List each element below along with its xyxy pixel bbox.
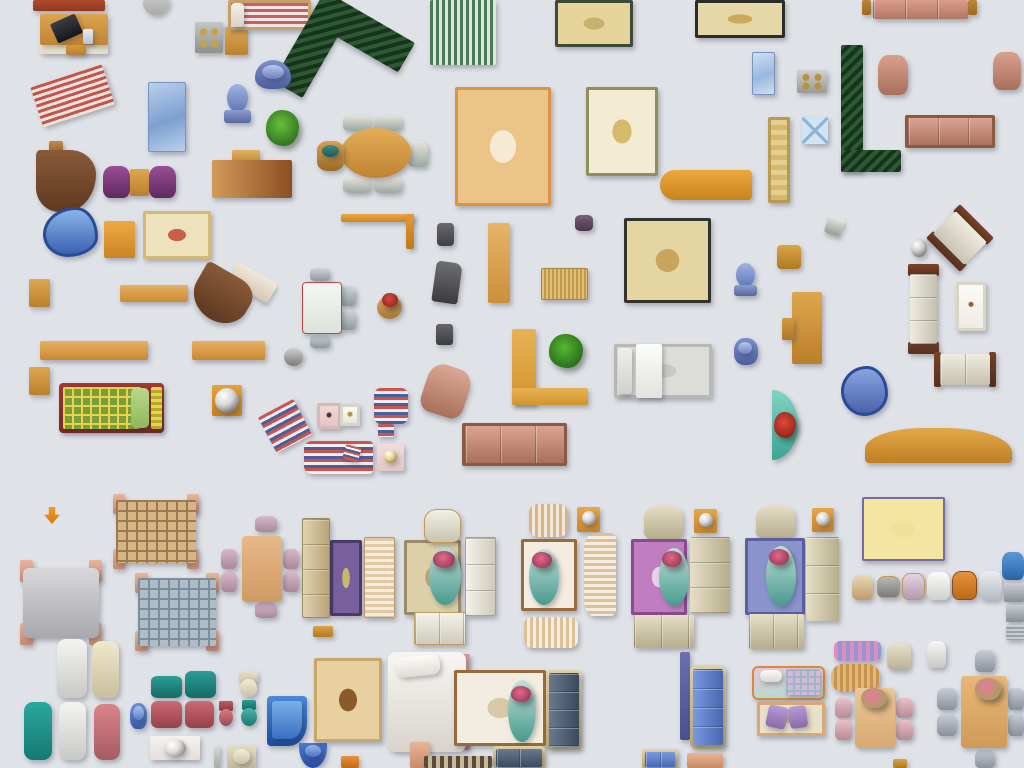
desk-return[interactable] (782, 318, 794, 340)
bathtub-cream[interactable] (92, 641, 119, 698)
toilet-bowl[interactable] (736, 263, 755, 287)
rug-yellow-plain[interactable] (862, 497, 945, 561)
nightstand[interactable] (225, 27, 248, 55)
flowers-2[interactable] (532, 552, 552, 568)
flower-bouquet[interactable] (975, 678, 1001, 700)
corner-sink-basin[interactable] (305, 745, 321, 757)
sofa-striped-v[interactable] (584, 533, 616, 616)
l-sofa-horizontal-arm[interactable] (841, 150, 901, 172)
loveseat-cushions-blue[interactable] (645, 752, 675, 767)
red-flowers[interactable] (382, 293, 398, 307)
dining-chair-gray[interactable] (1008, 688, 1024, 710)
desk-l-shape[interactable] (782, 292, 822, 364)
lounge-striped[interactable] (30, 64, 114, 127)
sofa-pink-top[interactable] (862, 0, 977, 20)
chair-gray[interactable] (877, 576, 900, 598)
mahjong-chair[interactable] (310, 335, 330, 348)
sofa-cushions-v[interactable] (910, 274, 937, 344)
shower-base[interactable] (227, 745, 256, 768)
sink-pink-1[interactable] (151, 701, 182, 728)
dining-chair-gray[interactable] (975, 750, 995, 768)
mahjong-table-set[interactable] (296, 268, 356, 348)
glass-door[interactable] (148, 82, 186, 152)
wood-bit-2[interactable] (893, 759, 907, 768)
sofa-body[interactable] (873, 0, 968, 19)
metal-ball[interactable] (699, 513, 713, 527)
dining-chair-gray[interactable] (937, 714, 957, 736)
side-table-ball-2[interactable] (694, 509, 717, 533)
bathtub-white-2[interactable] (59, 702, 86, 760)
dining-chair-pink[interactable] (221, 549, 237, 569)
dining-chair-pink[interactable] (896, 698, 913, 718)
armchair-purple-1[interactable] (103, 166, 130, 198)
armchair-seat[interactable] (374, 388, 408, 424)
plank-long-2[interactable] (192, 341, 265, 360)
toilet-red[interactable] (217, 701, 235, 726)
piano-upright[interactable] (184, 248, 278, 339)
oval-table-top[interactable] (341, 128, 411, 178)
rug-black-border-2[interactable] (624, 218, 711, 303)
dining-chair-pink[interactable] (255, 602, 277, 618)
desk-drawer[interactable] (66, 45, 86, 55)
stool-wood-tall[interactable] (777, 245, 801, 269)
side-table-ball-1[interactable] (577, 507, 600, 532)
plank-h-1[interactable] (120, 285, 188, 302)
seat-gray-2[interactable] (1006, 605, 1024, 622)
dining-set-wood[interactable] (937, 650, 1024, 768)
loveseat-slate[interactable] (493, 746, 545, 768)
pot-gray[interactable] (284, 348, 303, 366)
mahjong-table[interactable] (302, 282, 342, 334)
toilet-bowl[interactable] (227, 84, 248, 112)
chair-dotted[interactable] (902, 573, 925, 600)
red-flowers[interactable] (774, 412, 796, 438)
seat-gray-3[interactable] (1006, 625, 1024, 640)
rug-purple-strip[interactable] (330, 540, 362, 616)
bathtub-teal[interactable] (24, 702, 52, 760)
sofa-pink-3seat-b[interactable] (462, 423, 567, 466)
barrel-rim[interactable] (322, 145, 339, 157)
loveseat-arm[interactable] (989, 352, 996, 387)
towel-rail[interactable] (214, 746, 220, 768)
barrel-table[interactable] (317, 141, 344, 171)
toilet-base[interactable] (734, 285, 757, 296)
bathtub-white-1[interactable] (57, 639, 87, 698)
wood-bit[interactable] (313, 626, 333, 637)
toilet-cream[interactable] (237, 671, 260, 697)
recliner-gray[interactable] (431, 260, 462, 304)
scroll-plank[interactable] (768, 117, 790, 203)
armchair-pink-2[interactable] (993, 52, 1021, 90)
tray-card-1[interactable] (317, 403, 341, 429)
dining-chair-pink[interactable] (221, 572, 237, 592)
flowers-5[interactable] (511, 686, 531, 702)
plant-1[interactable] (266, 110, 299, 146)
sofa-cream-v[interactable] (690, 537, 730, 613)
sofa-pink-3seat-a[interactable] (905, 115, 995, 148)
chair-white[interactable] (927, 572, 950, 600)
bed-green[interactable] (59, 383, 164, 433)
sink-basin[interactable] (738, 342, 752, 354)
loveseat-white-2[interactable] (934, 352, 996, 387)
dining-chair-pink[interactable] (283, 549, 299, 569)
bed-blanket[interactable] (636, 344, 662, 398)
bidet-bowl[interactable] (241, 708, 257, 726)
desk-rounded[interactable] (660, 170, 752, 200)
gold-ball[interactable] (384, 450, 397, 463)
bed-blue-check[interactable] (135, 573, 219, 651)
bidet-teal[interactable] (239, 700, 259, 726)
bed-duvet-tan[interactable] (116, 500, 196, 563)
furniture-sprite-sheet (0, 0, 1024, 768)
armchair-cream-2[interactable] (756, 506, 795, 540)
table-halfround-teal[interactable] (772, 390, 798, 460)
grand-piano[interactable] (36, 150, 96, 212)
plank-vertical[interactable] (488, 223, 510, 303)
mahjong-chair[interactable] (340, 286, 356, 306)
bed-tan-check[interactable] (113, 494, 199, 569)
dining-table-oval-set[interactable] (341, 113, 429, 195)
armchair-striped-top[interactable] (529, 504, 568, 537)
pond-triangle[interactable] (841, 366, 888, 416)
sofa-tan-v-0[interactable] (302, 518, 330, 618)
striped-rug-green[interactable] (430, 0, 496, 65)
chair-blue[interactable] (1002, 552, 1024, 580)
headboard-wood[interactable] (865, 428, 1012, 463)
cabinet-peach-2[interactable] (687, 753, 723, 768)
urinal-basin[interactable] (133, 706, 144, 720)
wall-sink-blue-2[interactable] (734, 338, 758, 365)
shower-corner-blue[interactable] (267, 696, 307, 746)
window-panel[interactable] (752, 52, 775, 95)
bed-striped-pillow[interactable] (231, 3, 244, 27)
lounge-pink[interactable] (834, 641, 881, 661)
rug-green-border[interactable] (555, 0, 633, 47)
loveseat-blue-partial[interactable] (642, 749, 678, 768)
frame-bar-h[interactable] (341, 214, 414, 222)
dining-chair[interactable] (374, 177, 402, 193)
sofa-striped-body[interactable] (304, 441, 373, 474)
bed-duvet-silver[interactable] (23, 568, 99, 638)
shower-floor[interactable] (272, 701, 302, 739)
dining-set-small[interactable] (220, 516, 305, 622)
round-table[interactable] (143, 0, 169, 15)
bed-rail[interactable] (151, 387, 162, 429)
metal-pot[interactable] (215, 388, 239, 413)
flowers-4[interactable] (769, 549, 789, 565)
dining-chair-gray[interactable] (975, 650, 995, 672)
side-table-grid[interactable] (195, 22, 223, 53)
sofa-white-shelf-v[interactable] (908, 264, 939, 354)
metal-ball[interactable] (816, 512, 830, 526)
toilet-blue-1[interactable] (224, 84, 251, 124)
sink-pink-2[interactable] (185, 701, 214, 728)
chair-orange[interactable] (952, 571, 977, 600)
mahjong-chair[interactable] (310, 268, 330, 281)
loveseat-cushions-slate[interactable] (496, 749, 542, 767)
sofa-cushions-slate[interactable] (549, 673, 579, 747)
bathtub-pink[interactable] (94, 704, 120, 760)
side-table-ball-3[interactable] (812, 508, 834, 532)
loveseat-white-tilted[interactable] (926, 204, 994, 272)
stove-grid[interactable] (797, 70, 827, 93)
loveseat-white-bottom[interactable] (414, 612, 466, 645)
loveseat-cushions[interactable] (933, 211, 987, 265)
rug-tan-diamond[interactable] (314, 658, 382, 742)
chair-cream-arm[interactable] (887, 643, 911, 670)
sofa-dark-pattern[interactable] (424, 756, 492, 768)
phone[interactable] (83, 29, 93, 44)
wood-square-2[interactable] (29, 367, 50, 395)
shelf-bamboo[interactable] (541, 268, 588, 300)
loveseat-striped-bottom[interactable] (524, 617, 578, 648)
metal-ball[interactable] (582, 511, 596, 525)
floral-cushion[interactable] (786, 669, 820, 695)
sofa-blue-v[interactable] (690, 665, 726, 749)
sink-corner-blue[interactable] (299, 743, 327, 768)
sink-teal-1[interactable] (151, 676, 182, 698)
sink-teal-2[interactable] (185, 671, 216, 698)
dining-chair[interactable] (343, 177, 371, 193)
card-white-2[interactable] (340, 404, 360, 426)
mahjong-chair[interactable] (340, 310, 356, 330)
armchair-ottoman[interactable] (378, 424, 394, 437)
sofa-striped-h[interactable] (304, 441, 373, 474)
kettle[interactable] (164, 739, 186, 757)
toilet-base[interactable] (224, 110, 251, 123)
stove-pot-mat[interactable] (212, 385, 242, 416)
armchair-purple-2[interactable] (149, 166, 176, 198)
speaker-small[interactable] (824, 215, 846, 237)
side-table-wood[interactable] (130, 169, 149, 196)
table-orange-v[interactable] (104, 221, 135, 258)
sofa-arm-left[interactable] (862, 0, 871, 15)
dining-chair-pink[interactable] (255, 516, 277, 532)
toilet-blue-2[interactable] (734, 263, 757, 297)
flowers-1[interactable] (433, 551, 455, 568)
red-game-table-edge[interactable] (33, 0, 105, 11)
flower-bouquet[interactable] (861, 688, 887, 708)
sofa-cushions-blue[interactable] (693, 669, 723, 745)
loveseat-cushions[interactable] (940, 354, 990, 385)
seat-gray-1[interactable] (1004, 584, 1024, 602)
bed-pillow[interactable] (618, 348, 632, 394)
bed-duvet-blue[interactable] (138, 578, 216, 646)
stool-gray[interactable] (437, 223, 454, 246)
sphere-metal[interactable] (911, 239, 927, 257)
bed-small-white[interactable] (614, 344, 712, 398)
chair-tan[interactable] (852, 575, 873, 600)
dining-chair-pink[interactable] (896, 720, 913, 740)
dining-chair-gray[interactable] (1008, 714, 1024, 736)
purple-pillow[interactable] (788, 705, 809, 729)
rug-orange-large[interactable] (455, 87, 551, 206)
frame-bar-v[interactable] (406, 214, 414, 249)
sofa-purple-pillows[interactable] (757, 702, 825, 736)
wood-square-1[interactable] (29, 279, 50, 307)
dining-chair-pink[interactable] (283, 572, 299, 592)
armchair-cream-top[interactable] (644, 506, 683, 540)
dining-chair-pink[interactable] (835, 698, 852, 718)
drain[interactable] (233, 749, 250, 764)
bed-silver[interactable] (20, 560, 102, 645)
side-table-pink[interactable] (377, 444, 404, 471)
sofa-white-v[interactable] (465, 537, 496, 616)
bed-pillow-green[interactable] (131, 388, 149, 428)
roll-pillow[interactable] (760, 670, 782, 682)
arrow-down[interactable] (44, 507, 60, 524)
pond-kidney[interactable] (43, 207, 98, 257)
plant-2[interactable] (549, 334, 583, 368)
dining-chair[interactable] (408, 141, 428, 167)
l-frame-thin[interactable] (341, 214, 414, 249)
green-l-sofa[interactable] (841, 45, 901, 172)
gray-square-2[interactable] (436, 324, 453, 345)
rug-black-border[interactable] (695, 0, 785, 38)
sofa-floral[interactable] (752, 666, 825, 700)
sofa-slate-v[interactable] (546, 670, 582, 750)
plank-long-1[interactable] (40, 341, 148, 360)
flower-pot[interactable] (377, 293, 402, 319)
rug-floral-small[interactable] (143, 211, 211, 259)
chair-silver[interactable] (979, 571, 1002, 600)
loveseat-cream[interactable] (634, 615, 694, 648)
toilet-bowl[interactable] (219, 709, 233, 726)
armchair-striped[interactable] (374, 388, 408, 438)
stool-purple[interactable] (575, 215, 593, 231)
sofa-cream-v-2[interactable] (806, 537, 839, 621)
armchair-pink-tilted[interactable] (417, 360, 474, 421)
armchair-white-top[interactable] (424, 509, 461, 543)
office-desk-2[interactable] (212, 160, 292, 198)
tray-kettle[interactable] (150, 736, 200, 760)
loveseat-cream-2[interactable] (749, 614, 804, 649)
sink-basin[interactable] (262, 65, 284, 79)
dining-set-peach[interactable] (833, 686, 915, 748)
rug-olive-border[interactable] (586, 87, 658, 176)
orange-bit[interactable] (341, 756, 359, 768)
urinal-blue[interactable] (130, 703, 147, 729)
window-x[interactable] (802, 117, 828, 144)
desk-main[interactable] (792, 292, 822, 364)
rug-blue-edge[interactable] (680, 652, 690, 740)
bed-duvet-green[interactable] (63, 387, 141, 429)
l-bar-horizontal[interactable] (512, 388, 588, 405)
dining-chair-gray[interactable] (937, 688, 957, 710)
painting-card[interactable] (956, 282, 986, 331)
wall-sink-blue[interactable] (255, 60, 291, 89)
sofa-arm-right[interactable] (968, 0, 977, 15)
toilet-bowl[interactable] (240, 679, 257, 697)
dining-chair-pink[interactable] (835, 720, 852, 740)
flowers-3[interactable] (662, 551, 682, 567)
sofa-tan-striped-v[interactable] (364, 537, 395, 618)
dining-table-wood[interactable] (242, 536, 282, 602)
